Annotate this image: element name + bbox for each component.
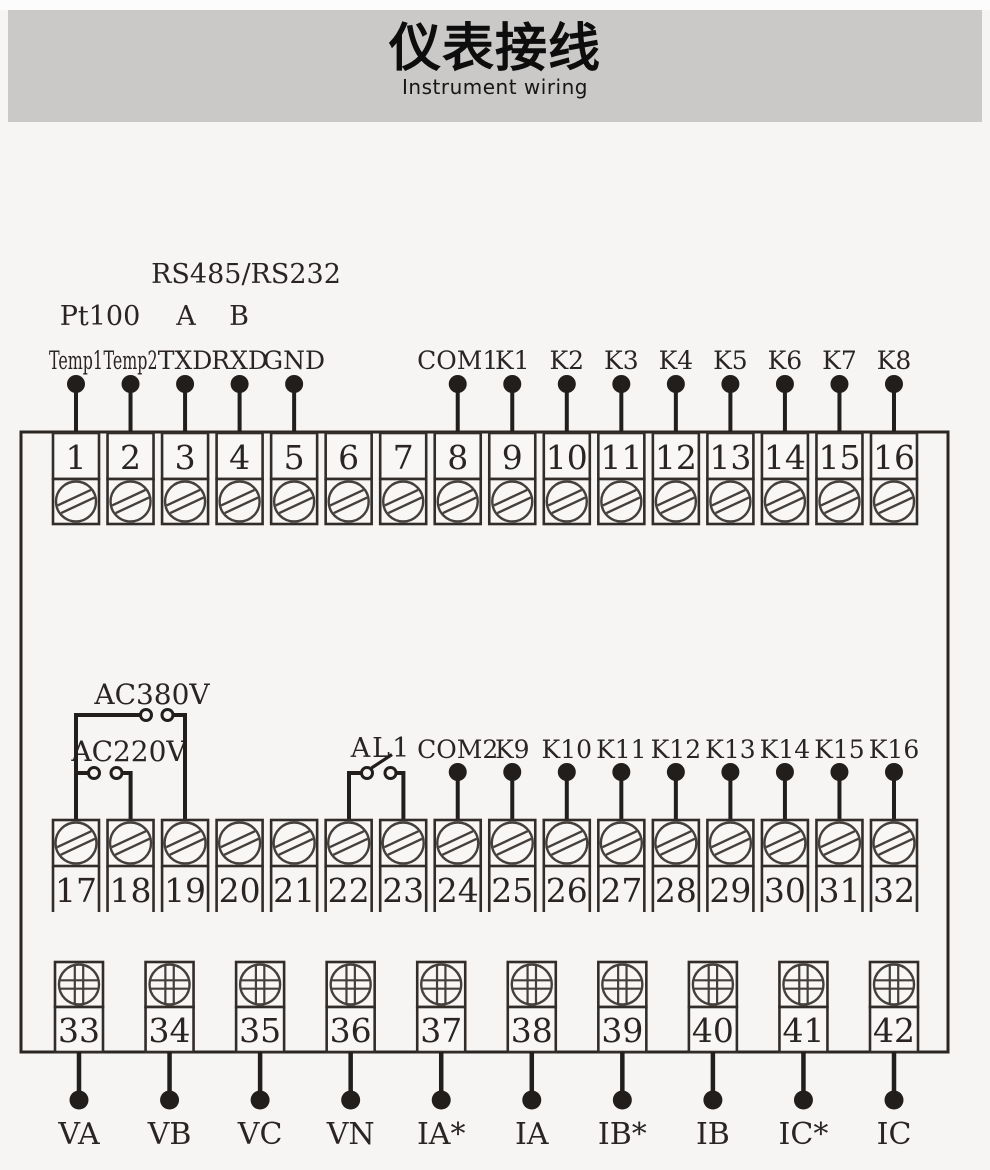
connection-dot bbox=[703, 1091, 722, 1110]
terminal-number: 38 bbox=[511, 1011, 553, 1050]
terminal-number: 9 bbox=[502, 438, 523, 477]
terminal-number: 35 bbox=[239, 1011, 281, 1050]
terminal-23: 23 bbox=[380, 820, 426, 912]
terminal-number: 1 bbox=[66, 438, 87, 477]
connection-dot bbox=[667, 375, 685, 393]
terminal-number: 13 bbox=[709, 438, 751, 477]
terminal-signal-label: IB* bbox=[598, 1117, 647, 1152]
terminal-10: K210 bbox=[544, 346, 590, 524]
terminal-screw-box bbox=[217, 479, 263, 524]
terminal-11: K311 bbox=[598, 346, 644, 524]
terminal-42: 42IC bbox=[870, 962, 918, 1152]
terminal-signal-label: K16 bbox=[869, 735, 920, 764]
terminal-5: GND5 bbox=[263, 346, 325, 524]
connection-dot bbox=[70, 1091, 89, 1110]
connection-dot bbox=[341, 1091, 360, 1110]
terminal-screw-box bbox=[653, 820, 699, 866]
al1-contact-circle bbox=[385, 768, 396, 779]
ac380v-contact-circle bbox=[141, 710, 152, 721]
connection-dot bbox=[776, 375, 794, 393]
terminal-screw-box bbox=[598, 820, 644, 866]
terminal-screw-box bbox=[417, 962, 465, 1007]
connection-dot bbox=[885, 763, 903, 781]
terminal-3: TXD3 bbox=[158, 346, 213, 524]
terminal-41: 41IC* bbox=[779, 962, 829, 1152]
terminal-number: 39 bbox=[601, 1011, 643, 1050]
terminal-number: 23 bbox=[382, 871, 424, 910]
terminal-34: 34VB bbox=[146, 962, 194, 1152]
terminal-18: 18 bbox=[108, 820, 154, 912]
terminal-signal-label: COM2 bbox=[417, 735, 498, 764]
connection-dot bbox=[503, 375, 521, 393]
connection-dot bbox=[558, 763, 576, 781]
terminal-33: 33VA bbox=[55, 962, 103, 1152]
connection-dot bbox=[522, 1091, 541, 1110]
terminal-signal-label: K14 bbox=[760, 735, 811, 764]
terminal-9: K19 bbox=[489, 346, 535, 524]
terminal-number: 28 bbox=[655, 871, 697, 910]
terminal-signal-label: IA bbox=[515, 1117, 549, 1152]
terminal-number: 29 bbox=[709, 871, 751, 910]
terminal-number: 21 bbox=[273, 871, 315, 910]
terminal-number: 41 bbox=[782, 1011, 824, 1050]
terminal-number: 32 bbox=[873, 871, 915, 910]
connection-dot bbox=[776, 763, 794, 781]
terminal-30: K1430 bbox=[760, 735, 811, 912]
terminal-2: Temp22 bbox=[104, 346, 158, 524]
terminal-number: 12 bbox=[655, 438, 697, 477]
connection-dot bbox=[449, 763, 467, 781]
terminal-screw-box bbox=[217, 820, 263, 866]
terminal-signal-label: VB bbox=[147, 1117, 192, 1152]
connection-dot bbox=[830, 763, 848, 781]
terminal-screw-box bbox=[53, 479, 99, 524]
terminal-signal-label: COM1 bbox=[417, 346, 498, 375]
connection-dot bbox=[285, 375, 303, 393]
rs485-rs232-label: RS485/RS232 bbox=[151, 259, 341, 290]
terminal-4: RXD4 bbox=[211, 346, 268, 524]
terminal-number: 11 bbox=[600, 438, 642, 477]
terminal-14: K614 bbox=[762, 346, 808, 524]
al1-label: AL1 bbox=[350, 733, 412, 764]
terminal-screw-box bbox=[435, 479, 481, 524]
terminal-signal-label: K3 bbox=[604, 346, 639, 375]
terminal-signal-label: Temp1 bbox=[49, 346, 103, 375]
terminal-screw-box bbox=[327, 962, 375, 1007]
terminal-screw-box bbox=[236, 962, 284, 1007]
connection-dot bbox=[160, 1091, 179, 1110]
terminal-signal-label: GND bbox=[263, 346, 325, 375]
terminal-signal-label: K13 bbox=[705, 735, 756, 764]
terminal-7: 7 bbox=[380, 433, 426, 524]
terminal-number: 40 bbox=[692, 1011, 734, 1050]
connection-dot bbox=[432, 1091, 451, 1110]
terminal-24: COM224 bbox=[417, 735, 498, 912]
terminal-screw-box bbox=[326, 820, 372, 866]
terminal-number: 17 bbox=[55, 871, 97, 910]
terminal-signal-label: IC bbox=[877, 1117, 912, 1152]
ac220v-contact-circle bbox=[89, 768, 100, 779]
terminal-signal-label: K4 bbox=[659, 346, 694, 375]
connection-dot bbox=[794, 1091, 813, 1110]
terminal-screw-box bbox=[326, 479, 372, 524]
connection-dot bbox=[176, 375, 194, 393]
terminal-number: 37 bbox=[420, 1011, 462, 1050]
connection-dot bbox=[558, 375, 576, 393]
ac220v-contact-circle bbox=[111, 768, 122, 779]
terminal-32: K1632 bbox=[869, 735, 920, 912]
instrument-wiring-page: 仪表接线 Instrument wiring RS485/RS232 Pt100… bbox=[0, 0, 990, 1170]
terminal-screw-box bbox=[762, 479, 808, 524]
terminal-21: 21 bbox=[271, 820, 317, 912]
terminal-17: 17 bbox=[53, 820, 99, 912]
connection-dot bbox=[612, 763, 630, 781]
terminal-number: 26 bbox=[546, 871, 588, 910]
terminal-screw-box bbox=[779, 962, 827, 1007]
terminal-screw-box bbox=[53, 820, 99, 866]
terminal-screw-box bbox=[707, 820, 753, 866]
ac220v-wire-right bbox=[122, 773, 131, 820]
terminal-number: 42 bbox=[873, 1011, 915, 1050]
terminal-number: 2 bbox=[120, 438, 141, 477]
terminal-27: K1127 bbox=[596, 735, 647, 912]
terminal-19: 19 bbox=[162, 820, 208, 912]
terminal-signal-label: TXD bbox=[158, 346, 213, 375]
terminal-screw-box bbox=[162, 479, 208, 524]
terminal-screw-box bbox=[489, 479, 535, 524]
terminal-22: 22 bbox=[326, 820, 372, 912]
terminal-number: 27 bbox=[600, 871, 642, 910]
terminal-screw-box bbox=[816, 479, 862, 524]
terminal-screw-box bbox=[508, 962, 556, 1007]
terminal-signal-label: K15 bbox=[814, 735, 865, 764]
terminal-screw-box bbox=[870, 962, 918, 1007]
terminal-signal-label: K9 bbox=[495, 735, 530, 764]
terminal-screw-box bbox=[380, 820, 426, 866]
terminal-screw-box bbox=[762, 820, 808, 866]
connection-dot bbox=[721, 375, 739, 393]
terminal-number: 33 bbox=[58, 1011, 100, 1050]
terminal-screw-box bbox=[162, 820, 208, 866]
terminal-screw-box bbox=[871, 820, 917, 866]
terminal-signal-label: VC bbox=[237, 1117, 283, 1152]
terminal-number: 19 bbox=[164, 871, 206, 910]
terminal-screw-box bbox=[55, 962, 103, 1007]
connection-dot bbox=[67, 375, 85, 393]
connection-dot bbox=[612, 375, 630, 393]
terminal-signal-label: IA* bbox=[417, 1117, 466, 1152]
terminal-signal-label: K7 bbox=[822, 346, 857, 375]
terminal-screw-box bbox=[544, 479, 590, 524]
terminal-number: 15 bbox=[818, 438, 860, 477]
terminal-screw-box bbox=[380, 479, 426, 524]
terminal-31: K1531 bbox=[814, 735, 865, 912]
terminal-38: 38IA bbox=[508, 962, 556, 1152]
rs485-b-label: B bbox=[229, 301, 249, 332]
terminal-row-bottom: 33VA34VB35VC36VN37IA*38IA39IB*40IB41IC*4… bbox=[55, 962, 918, 1152]
terminal-number: 4 bbox=[229, 438, 250, 477]
terminal-screw-box bbox=[653, 479, 699, 524]
terminal-number: 14 bbox=[764, 438, 806, 477]
terminal-6: 6 bbox=[326, 433, 372, 524]
terminal-28: K1228 bbox=[651, 735, 702, 912]
terminal-signal-label: Temp2 bbox=[104, 346, 158, 375]
terminal-signal-label: K12 bbox=[651, 735, 702, 764]
connection-dot bbox=[885, 375, 903, 393]
terminal-signal-label: K6 bbox=[768, 346, 803, 375]
rs485-a-label: A bbox=[175, 301, 196, 332]
terminal-signal-label: K11 bbox=[596, 735, 647, 764]
terminal-number: 7 bbox=[393, 438, 414, 477]
connection-dot bbox=[830, 375, 848, 393]
connection-dot bbox=[231, 375, 249, 393]
terminal-37: 37IA* bbox=[417, 962, 466, 1152]
terminal-signal-label: K5 bbox=[713, 346, 748, 375]
terminal-number: 30 bbox=[764, 871, 806, 910]
terminal-screw-box bbox=[108, 479, 154, 524]
terminal-signal-label: IB bbox=[696, 1117, 730, 1152]
terminal-signal-label: K10 bbox=[542, 735, 593, 764]
terminal-signal-label: IC* bbox=[779, 1117, 829, 1152]
terminal-36: 36VN bbox=[326, 962, 375, 1152]
terminal-signal-label: RXD bbox=[211, 346, 268, 375]
connection-dot bbox=[721, 763, 739, 781]
terminal-screw-box bbox=[271, 820, 317, 866]
terminal-screw-box bbox=[871, 479, 917, 524]
ac380v-contact-circle bbox=[162, 710, 173, 721]
terminal-screw-box bbox=[689, 962, 737, 1007]
al1-contact-circle bbox=[362, 768, 373, 779]
terminal-row-top: Temp11Temp22TXD3RXD4GND567COM18K19K210K3… bbox=[49, 346, 917, 524]
terminal-39: 39IB* bbox=[598, 962, 647, 1152]
terminal-13: K513 bbox=[707, 346, 753, 524]
connection-dot bbox=[503, 763, 521, 781]
terminal-number: 18 bbox=[110, 871, 152, 910]
connection-dot bbox=[613, 1091, 632, 1110]
terminal-signal-label: K8 bbox=[877, 346, 912, 375]
terminal-screw-box bbox=[707, 479, 753, 524]
connection-dot bbox=[251, 1091, 270, 1110]
connection-dot bbox=[667, 763, 685, 781]
terminal-signal-label: K1 bbox=[495, 346, 530, 375]
terminal-8: COM18 bbox=[417, 346, 498, 524]
terminal-29: K1329 bbox=[705, 735, 756, 912]
terminal-number: 24 bbox=[437, 871, 479, 910]
terminal-screw-box bbox=[271, 479, 317, 524]
terminal-screw-box bbox=[146, 962, 194, 1007]
terminal-16: K816 bbox=[871, 346, 917, 524]
terminal-35: 35VC bbox=[236, 962, 284, 1152]
ac380v-label: AC380V bbox=[93, 678, 210, 711]
terminal-signal-label: VA bbox=[57, 1117, 100, 1152]
terminal-number: 8 bbox=[447, 438, 468, 477]
terminal-15: K715 bbox=[816, 346, 862, 524]
terminal-number: 36 bbox=[330, 1011, 372, 1050]
terminal-screw-box bbox=[489, 820, 535, 866]
terminal-12: K412 bbox=[653, 346, 699, 524]
terminal-1: Temp11 bbox=[49, 346, 103, 524]
terminal-screw-box bbox=[816, 820, 862, 866]
connection-dot bbox=[885, 1091, 904, 1110]
terminal-screw-box bbox=[544, 820, 590, 866]
wiring-diagram: RS485/RS232 Pt100 A B AC380V AC220V AL1 … bbox=[0, 0, 990, 1170]
terminal-signal-label: VN bbox=[326, 1117, 375, 1152]
terminal-number: 20 bbox=[219, 871, 261, 910]
terminal-number: 31 bbox=[818, 871, 860, 910]
terminal-number: 3 bbox=[175, 438, 196, 477]
pt100-label: Pt100 bbox=[60, 301, 141, 332]
terminal-26: K1026 bbox=[542, 735, 593, 912]
terminal-screw-box bbox=[598, 962, 646, 1007]
terminal-screw-box bbox=[598, 479, 644, 524]
terminal-number: 16 bbox=[873, 438, 915, 477]
ac220v-label: AC220V bbox=[70, 735, 187, 768]
terminal-screw-box bbox=[108, 820, 154, 866]
terminal-number: 6 bbox=[338, 438, 359, 477]
terminal-screw-box bbox=[435, 820, 481, 866]
terminal-number: 25 bbox=[491, 871, 533, 910]
connection-dot bbox=[449, 375, 467, 393]
terminal-number: 34 bbox=[149, 1011, 191, 1050]
terminal-number: 10 bbox=[546, 438, 588, 477]
terminal-number: 22 bbox=[328, 871, 370, 910]
terminal-20: 20 bbox=[217, 820, 263, 912]
terminal-40: 40IB bbox=[689, 962, 737, 1152]
al1-wire-right bbox=[396, 773, 403, 820]
terminal-25: K925 bbox=[489, 735, 535, 912]
terminal-signal-label: K2 bbox=[550, 346, 585, 375]
terminal-number: 5 bbox=[284, 438, 305, 477]
al1-wire-left bbox=[349, 773, 362, 820]
connection-dot bbox=[122, 375, 140, 393]
